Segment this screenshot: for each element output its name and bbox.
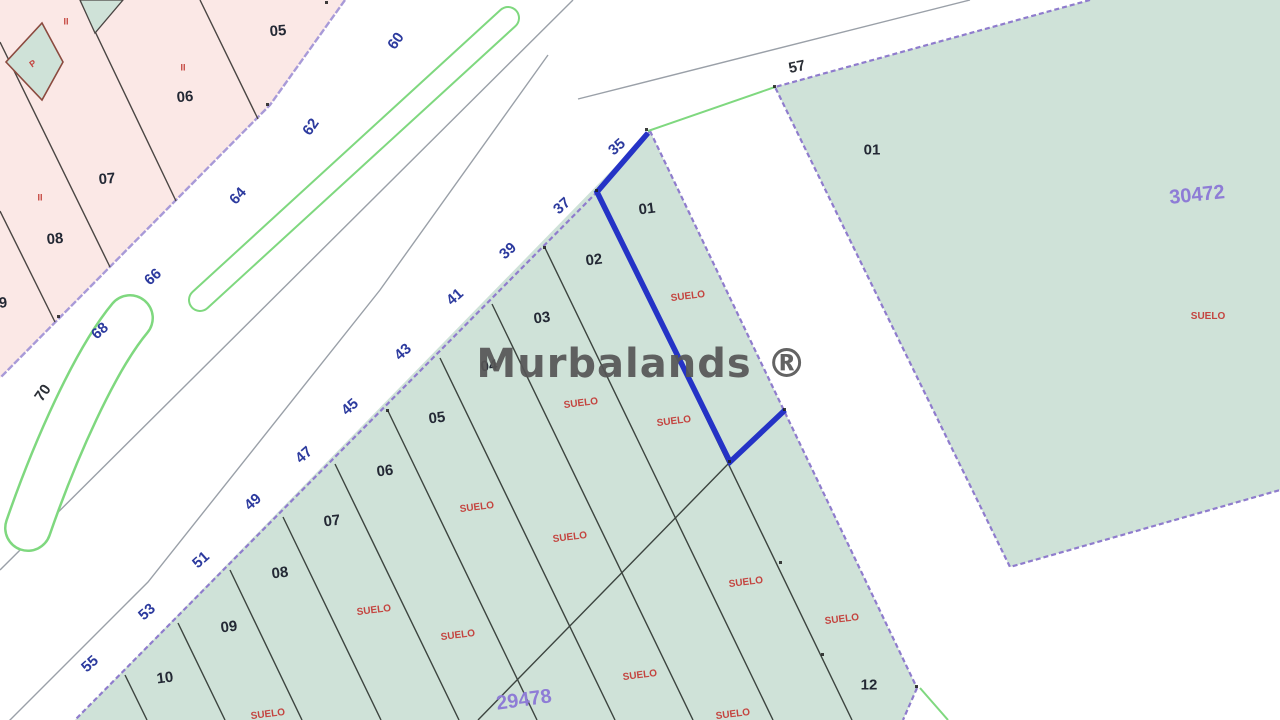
parcel-number-10: 10 xyxy=(156,670,174,687)
street-number-47: 47 xyxy=(293,444,315,466)
street-number-39: 39 xyxy=(497,240,519,262)
parcel-number-01: 01 xyxy=(864,143,881,158)
suelo-label-suelo: SUELO xyxy=(1191,312,1225,322)
parcel-number-01: 01 xyxy=(638,201,656,218)
parcel-number-09: 09 xyxy=(220,619,238,636)
street-number-57: 57 xyxy=(787,58,806,76)
street-number-35: 35 xyxy=(606,136,628,158)
street-number-51: 51 xyxy=(190,549,212,571)
street-number-41: 41 xyxy=(444,286,466,308)
street-number-66: 66 xyxy=(142,266,164,288)
suelo-label-suelo: SUELO xyxy=(670,290,705,304)
parcel-number-07: 07 xyxy=(323,513,341,530)
suelo-label-suelo: SUELO xyxy=(459,501,494,515)
parcel-number-02: 02 xyxy=(585,252,603,269)
symbol-ii: II xyxy=(63,18,68,27)
cadastral-ref-29478: 29478 xyxy=(495,686,553,714)
street-number-62: 62 xyxy=(300,116,322,138)
symbol-ii: II xyxy=(37,194,42,203)
street-number-55: 55 xyxy=(79,653,101,675)
parcel-number-9: 9 xyxy=(0,295,8,311)
street-number-60: 60 xyxy=(385,30,407,52)
symbol-ii: II xyxy=(180,64,185,73)
suelo-label-suelo: SUELO xyxy=(622,669,657,683)
street-number-43: 43 xyxy=(392,341,414,363)
street-number-70: 70 xyxy=(32,382,54,404)
parcel-number-08: 08 xyxy=(46,231,64,247)
parcel-number-03: 03 xyxy=(533,310,551,327)
cadastral-map: 3537394143454749515355606264666870570102… xyxy=(0,0,1280,720)
suelo-label-suelo: SUELO xyxy=(552,531,587,545)
parcel-number-05: 05 xyxy=(428,410,446,427)
parcel-number-06: 06 xyxy=(176,89,194,105)
parcel-number-06: 06 xyxy=(376,463,394,480)
parcel-number-05: 05 xyxy=(269,23,287,39)
watermark: Murbalands ® xyxy=(476,341,807,387)
suelo-label-suelo: SUELO xyxy=(824,613,859,627)
street-number-49: 49 xyxy=(242,491,264,513)
suelo-label-suelo: SUELO xyxy=(728,576,763,590)
street-number-37: 37 xyxy=(551,195,573,217)
parcel-number-12: 12 xyxy=(861,678,878,693)
suelo-label-suelo: SUELO xyxy=(656,415,691,429)
suelo-label-suelo: SUELO xyxy=(715,708,750,720)
street-number-68: 68 xyxy=(89,320,111,342)
cadastral-ref-30472: 30472 xyxy=(1168,182,1225,208)
parcel-number-07: 07 xyxy=(98,171,116,187)
street-number-53: 53 xyxy=(136,601,158,623)
suelo-label-suelo: SUELO xyxy=(563,397,598,411)
street-number-45: 45 xyxy=(339,396,361,418)
street-number-64: 64 xyxy=(227,185,249,207)
symbol-p: P xyxy=(28,59,38,70)
suelo-label-suelo: SUELO xyxy=(250,708,285,720)
suelo-label-suelo: SUELO xyxy=(440,629,475,643)
suelo-label-suelo: SUELO xyxy=(356,604,391,618)
parcel-number-08: 08 xyxy=(271,565,289,582)
